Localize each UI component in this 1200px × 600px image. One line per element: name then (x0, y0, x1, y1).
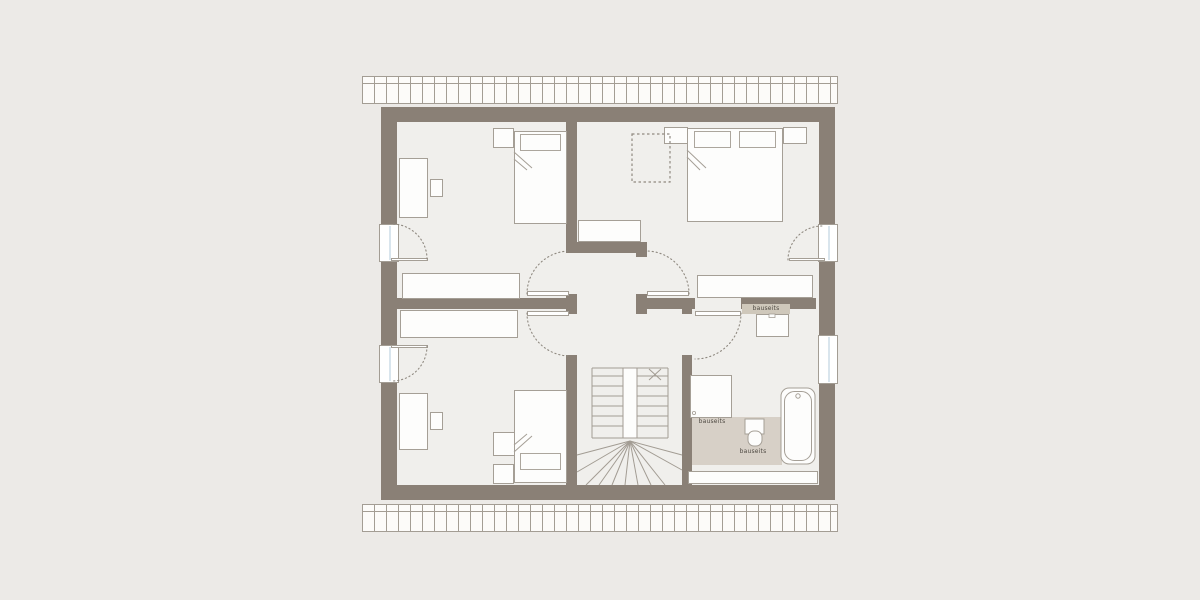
window-leaf-left-bottom (391, 345, 428, 348)
chair-symbol-bottom-left (430, 412, 443, 430)
door-leaf-bottom-left-bedroom (527, 311, 569, 316)
wall-exterior-right (819, 107, 835, 500)
pillow-symbol (739, 131, 776, 148)
nightstand-symbol-top-left (493, 128, 514, 148)
pillow-symbol (520, 134, 561, 151)
chair-symbol-top-left (430, 179, 443, 197)
label-bauseits-shower: bauseits (692, 418, 732, 426)
roof-hatch-top-line (363, 83, 837, 84)
wardrobe-symbol-master (697, 275, 813, 298)
wall-left-mid (397, 298, 577, 309)
roof-hatch-bottom-line (363, 511, 837, 512)
window-glass (389, 226, 391, 260)
washbasin-symbol (756, 314, 789, 337)
wall-exterior-bottom (381, 485, 835, 500)
label-bauseits-bathroom-floor: bauseits (730, 448, 776, 456)
desk-symbol-top-left (399, 158, 428, 218)
wall-exterior-left (381, 107, 397, 500)
roof-hatch-top (362, 76, 838, 104)
window-right-bathroom (818, 335, 838, 384)
door-leaf-bathroom (695, 311, 741, 316)
nightstand-symbol-master-right (783, 127, 807, 144)
window-glass (828, 226, 830, 260)
sideboard-symbol-hall-wall (578, 220, 641, 242)
wall-cap-right-mid (636, 294, 647, 314)
window-right-top (818, 224, 838, 262)
window-left-top (379, 224, 399, 262)
window-glass (389, 347, 391, 381)
nightstand-symbol-bottom-left (493, 464, 514, 484)
shower-symbol (690, 375, 732, 418)
wall-hall-top (566, 242, 647, 253)
wardrobe-symbol-top-left-room (402, 273, 520, 299)
wall-exterior-top (381, 107, 835, 122)
wall-nib-bathroom-door (682, 298, 692, 314)
wall-divider-top-bedrooms (566, 122, 577, 253)
window-glass (828, 337, 830, 382)
pillow-symbol (520, 453, 561, 470)
window-leaf-right-top (789, 258, 825, 261)
wall-stair-left (566, 355, 577, 485)
pillow-symbol (694, 131, 731, 148)
door-leaf-top-left-bedroom (527, 291, 569, 296)
window-leaf-left-top (391, 258, 428, 261)
wardrobe-symbol-bottom-left-room (400, 310, 518, 338)
window-left-bottom (379, 345, 399, 383)
knee-wall-niche (688, 471, 818, 484)
roof-hatch-bottom (362, 504, 838, 532)
vanity-counter: bauseits (742, 304, 790, 314)
door-leaf-top-right-bedroom (647, 291, 689, 296)
wall-nib-hall-top-right (636, 253, 647, 257)
floor-plan: bauseits (0, 0, 1200, 600)
nightstand-symbol-master-left (664, 127, 688, 144)
desk-symbol-bottom-left (399, 393, 428, 450)
